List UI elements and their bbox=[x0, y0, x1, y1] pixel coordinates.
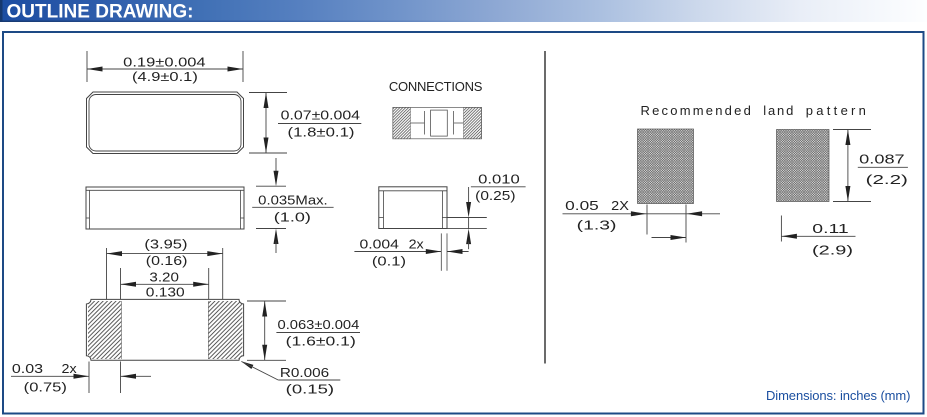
svg-text:(3.95): (3.95) bbox=[144, 236, 187, 251]
svg-text:(0.25): (0.25) bbox=[475, 188, 515, 203]
svg-text:0.035Max.: 0.035Max. bbox=[258, 192, 328, 207]
svg-text:0.063±0.004: 0.063±0.004 bbox=[278, 317, 360, 332]
svg-text:0.05: 0.05 bbox=[565, 198, 599, 213]
svg-text:0.03: 0.03 bbox=[12, 361, 43, 376]
svg-text:(0.15): (0.15) bbox=[286, 382, 334, 397]
svg-text:(4.9±0.1): (4.9±0.1) bbox=[132, 69, 198, 84]
svg-text:Dimensions: inches (mm): Dimensions: inches (mm) bbox=[766, 388, 911, 403]
svg-text:(1.6±0.1): (1.6±0.1) bbox=[286, 333, 356, 348]
svg-text:CONNECTIONS: CONNECTIONS bbox=[389, 79, 483, 94]
svg-text:0.010: 0.010 bbox=[478, 171, 520, 186]
svg-text:2x: 2x bbox=[409, 237, 425, 252]
svg-text:0.11: 0.11 bbox=[812, 221, 848, 236]
svg-text:0.07±0.004: 0.07±0.004 bbox=[281, 108, 360, 123]
svg-text:0.19±0.004: 0.19±0.004 bbox=[123, 54, 205, 69]
svg-text:0.004: 0.004 bbox=[360, 237, 399, 252]
svg-text:Recommended: Recommended bbox=[641, 103, 751, 118]
svg-text:(1.0): (1.0) bbox=[274, 210, 311, 225]
svg-text:0.130: 0.130 bbox=[146, 284, 185, 299]
svg-text:(0.75): (0.75) bbox=[24, 380, 67, 395]
svg-text:(0.1): (0.1) bbox=[372, 253, 406, 268]
svg-text:OUTLINE DRAWING:: OUTLINE DRAWING: bbox=[7, 1, 194, 23]
svg-text:(0.16): (0.16) bbox=[146, 253, 188, 268]
svg-text:(2.2): (2.2) bbox=[866, 172, 908, 187]
svg-text:2x: 2x bbox=[62, 361, 78, 376]
svg-text:3.20: 3.20 bbox=[149, 270, 179, 285]
svg-text:0.087: 0.087 bbox=[859, 152, 905, 167]
svg-text:R0.006: R0.006 bbox=[280, 365, 329, 380]
svg-text:2X: 2X bbox=[611, 198, 629, 213]
svg-text:(1.3): (1.3) bbox=[577, 217, 617, 232]
svg-text:(1.8±0.1): (1.8±0.1) bbox=[288, 124, 355, 139]
svg-text:land: land bbox=[763, 103, 793, 118]
svg-text:pattern: pattern bbox=[806, 103, 866, 118]
svg-text:(2.9): (2.9) bbox=[812, 243, 853, 258]
